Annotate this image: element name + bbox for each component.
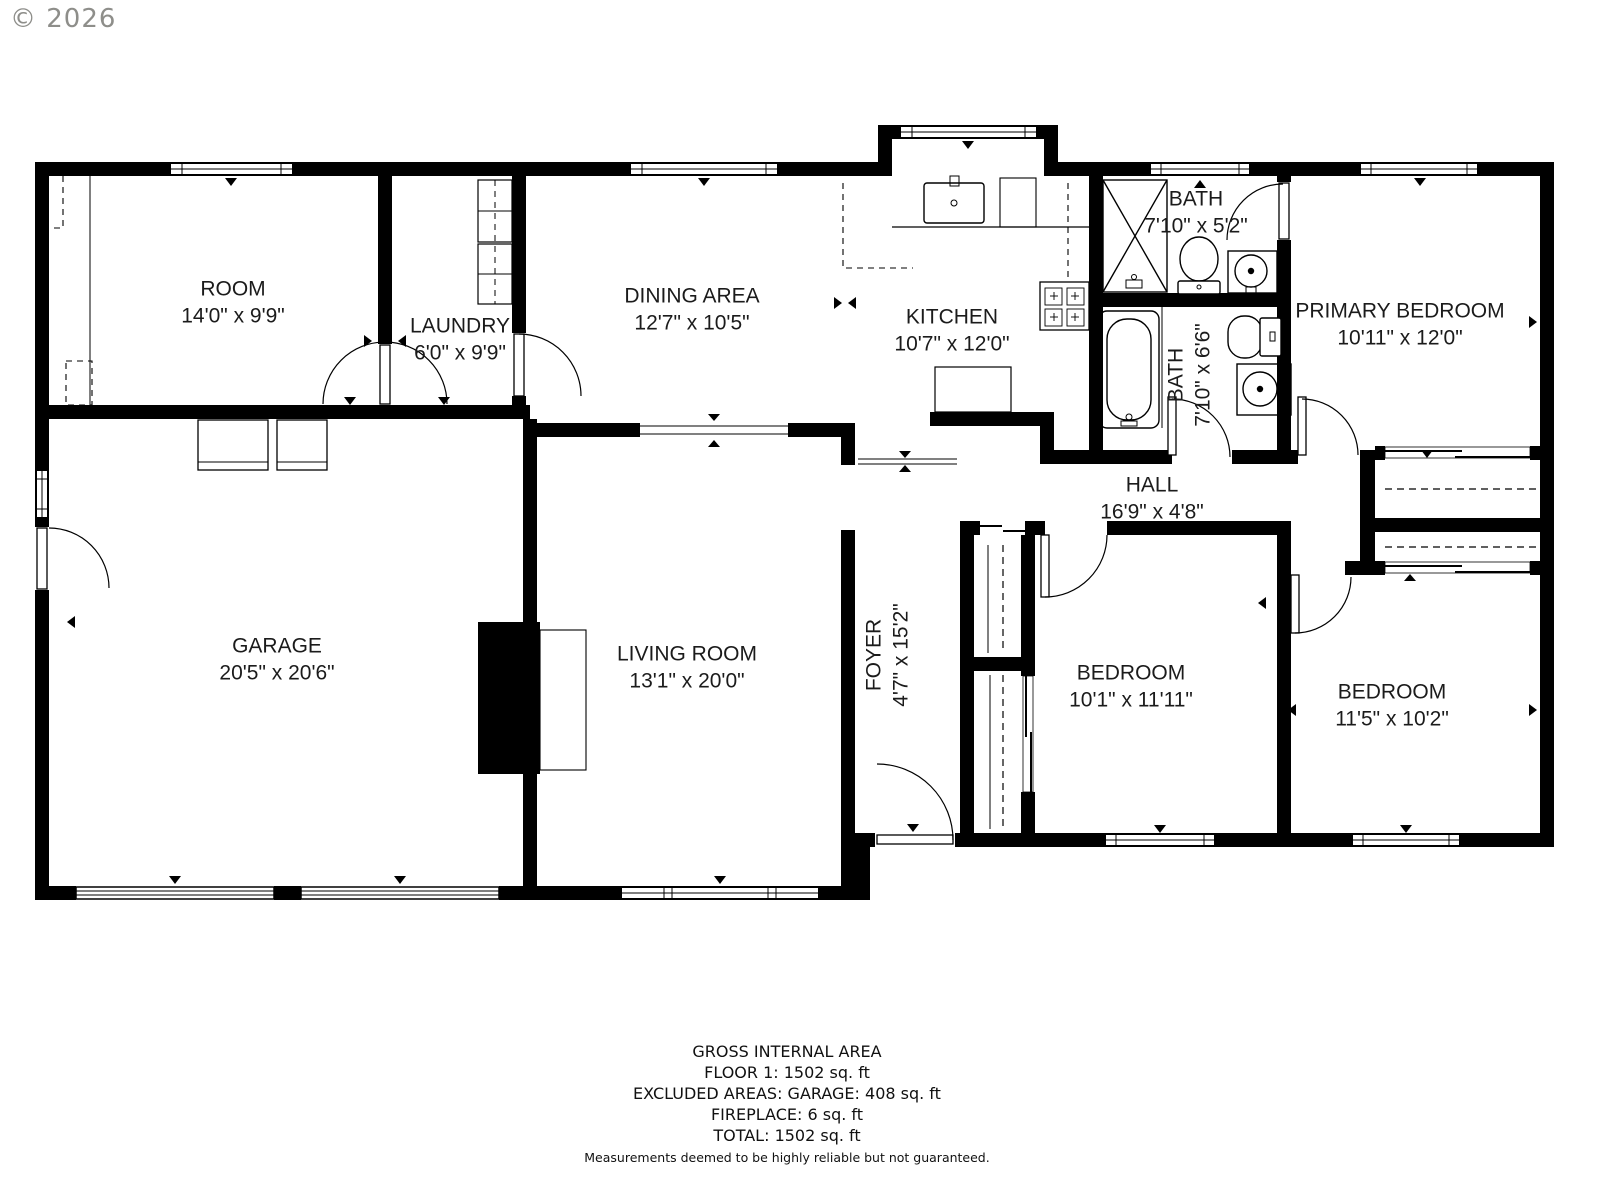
toilet xyxy=(1228,316,1281,358)
floor-plan-drawing xyxy=(0,0,1600,1200)
room-dims: 7'10" x 5'2" xyxy=(1144,213,1248,240)
room-name: BATH xyxy=(1144,186,1248,213)
room-label-bath-2: BATH 7'10" x 6'6" xyxy=(1163,323,1218,427)
cased-opening xyxy=(640,426,788,434)
garage-appliances xyxy=(198,420,327,470)
gross-internal-area-title: GROSS INTERNAL AREA xyxy=(584,1041,989,1062)
kitchen-sink xyxy=(924,176,984,223)
room-name: BEDROOM xyxy=(1335,679,1449,706)
room-name: DINING AREA xyxy=(624,283,759,310)
room-name: HALL xyxy=(1100,472,1204,499)
total-area: TOTAL: 1502 sq. ft xyxy=(584,1125,989,1146)
sink-vanity xyxy=(1228,251,1277,293)
kitchen-counter xyxy=(935,367,1011,412)
room-dims: 10'11" x 12'0" xyxy=(1295,325,1504,352)
front-door xyxy=(877,835,953,844)
room-name: GARAGE xyxy=(219,633,334,660)
room-name: PRIMARY BEDROOM xyxy=(1295,298,1504,325)
room-dims: 16'9" x 4'8" xyxy=(1100,499,1204,526)
room-dims: 7'10" x 6'6" xyxy=(1190,323,1217,427)
floor-plan-page: © 2026 ROOM 14'0" x 9'9" LAUNDRY 6'0" x … xyxy=(0,0,1600,1200)
room-dims: 12'7" x 10'5" xyxy=(624,310,759,337)
disclaimer: Measurements deemed to be highly reliabl… xyxy=(584,1150,989,1167)
opening-markers xyxy=(67,141,1537,884)
room-dims: 13'1" x 20'0" xyxy=(617,668,757,695)
room-label-bedroom-2: BEDROOM 11'5" x 10'2" xyxy=(1335,679,1449,734)
room-label-laundry: LAUNDRY 6'0" x 9'9" xyxy=(410,313,510,368)
room-label-foyer: FOYER 4'7" x 15'2" xyxy=(861,603,916,707)
room-name: LAUNDRY xyxy=(410,313,510,340)
room-name: FOYER xyxy=(861,603,888,707)
room-dims: 14'0" x 9'9" xyxy=(181,303,285,330)
laundry-dining-door xyxy=(514,334,524,396)
room-storage-lines xyxy=(49,176,92,405)
bedroom2-door xyxy=(1291,575,1299,633)
kitchen-fixtures xyxy=(843,176,1089,412)
windows xyxy=(36,126,1478,899)
room-label-living-room: LIVING ROOM 13'1" x 20'0" xyxy=(617,641,757,696)
bathtub xyxy=(1099,307,1162,428)
room-dims: 20'5" x 20'6" xyxy=(219,660,334,687)
room-name: ROOM xyxy=(181,276,285,303)
room-dims: 10'7" x 12'0" xyxy=(894,331,1009,358)
room-dims: 10'1" x 11'11" xyxy=(1069,687,1193,714)
room-label-room: ROOM 14'0" x 9'9" xyxy=(181,276,285,331)
bath1-door xyxy=(1279,183,1289,239)
room-label-hall: HALL 16'9" x 4'8" xyxy=(1100,472,1204,527)
range-stove xyxy=(1040,282,1089,330)
threshold xyxy=(858,459,957,464)
area-summary: GROSS INTERNAL AREA FLOOR 1: 1502 sq. ft… xyxy=(584,1041,989,1166)
excluded-fireplace-area: FIREPLACE: 6 sq. ft xyxy=(584,1104,989,1125)
closets xyxy=(980,447,1537,829)
room-dims: 11'5" x 10'2" xyxy=(1335,706,1449,733)
room-dims: 6'0" x 9'9" xyxy=(410,340,510,367)
room-label-bath-1: BATH 7'10" x 5'2" xyxy=(1144,186,1248,241)
room-name: KITCHEN xyxy=(894,304,1009,331)
room-name: BATH xyxy=(1163,323,1190,427)
room-label-kitchen: KITCHEN 10'7" x 12'0" xyxy=(894,304,1009,359)
wall-openings xyxy=(35,125,1530,900)
primary-bedroom-door xyxy=(1298,397,1306,455)
walls xyxy=(35,125,1554,900)
laundry-cabinets xyxy=(478,180,512,304)
dishwasher xyxy=(1000,178,1036,227)
copyright-watermark: © 2026 xyxy=(10,4,116,34)
excluded-garage-area: EXCLUDED AREAS: GARAGE: 408 sq. ft xyxy=(584,1083,989,1104)
room-name: BEDROOM xyxy=(1069,660,1193,687)
room-label-bedroom-1: BEDROOM 10'1" x 11'11" xyxy=(1069,660,1193,715)
room-dims: 4'7" x 15'2" xyxy=(888,603,915,707)
room-label-garage: GARAGE 20'5" x 20'6" xyxy=(219,633,334,688)
room-laundry-door xyxy=(380,345,390,404)
room-label-primary-bedroom: PRIMARY BEDROOM 10'11" x 12'0" xyxy=(1295,298,1504,353)
room-label-dining-area: DINING AREA 12'7" x 10'5" xyxy=(624,283,759,338)
upper-cabinets-dashed xyxy=(843,183,913,268)
garage-side-door xyxy=(37,528,47,589)
floor1-area: FLOOR 1: 1502 sq. ft xyxy=(584,1062,989,1083)
bedroom1-door xyxy=(1041,535,1049,597)
toilet xyxy=(1178,237,1220,294)
room-name: LIVING ROOM xyxy=(617,641,757,668)
